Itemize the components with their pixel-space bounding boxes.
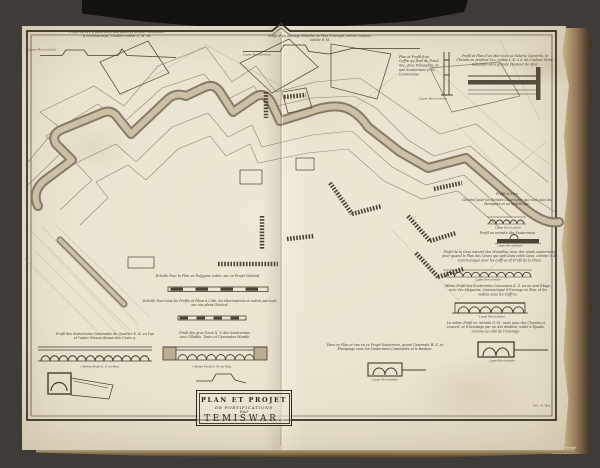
caption-line: avec l'Étable, Tours et Casemates Murale… [149, 335, 281, 339]
title-cartouche: PLAN ET PROJET DE FORTIFICATIONS Pour TE… [196, 390, 292, 426]
caption-right-head2: Général pour les Rondes Casemates qui vo… [460, 198, 554, 207]
engraver-signature: Fec: A. Hm. [533, 404, 575, 408]
label-ligne-horizontale: Ligne Horizontale [28, 48, 84, 52]
label-ligne-horizontale: Ligne Horizontale [243, 53, 299, 57]
caption-scale-plan: Echelle Pour le Plan en Polygone entier,… [145, 274, 272, 278]
caption-bottom-left-sub: † Même Profil K. F. en Plan. [62, 365, 137, 369]
plate-title-line3: Pour [200, 410, 289, 414]
caption-top-left: Profil du Terre plein avec Murailles et … [57, 30, 178, 39]
engraved-plate-page [22, 26, 570, 450]
caption-scale-profils: Echelle Pour tous les Profils et Plans à… [141, 299, 279, 308]
book-scan: Profil du Terre plein avec Murailles et … [0, 0, 600, 468]
caption-bottom-center: Profil des gros Tours X. V. des Souterra… [149, 331, 281, 340]
label-ligne-horizontale: Ligne Horizontale [357, 378, 413, 382]
caption-right-head: Profil et Plan [474, 192, 540, 196]
label-ligne-horizontale: Ligne Horizontale [460, 278, 516, 282]
label-ligne-horizontale: Ligne Horizontale [482, 244, 538, 248]
caption-bottom-right: Dans ce Plan et vue en ce Projet Souterr… [325, 343, 446, 352]
plate-title-line4: TEMISWAR. [200, 414, 289, 424]
caption-top-center: Profil d'un ouvrage détaché au Plan Prin… [260, 34, 381, 43]
caption-bottom-center-sub: † Même Profil X. W. en Plan. [174, 365, 249, 369]
caption-right-retraite: Profil en retraite des Souterrains. [464, 231, 552, 235]
caption-right-gh: Le même Profil en retraite G. H., mais a… [441, 321, 551, 334]
book-cloth-shadow [82, 0, 468, 30]
title-cartouche-inner: PLAN ET PROJET DE FORTIFICATIONS Pour TE… [199, 393, 290, 424]
label-ligne-horizontale: Ligne Horizontale [464, 315, 520, 319]
caption-line: à Contrescarpe, Couleur cottée G. M. M. [57, 34, 178, 38]
plate-title-line1: PLAN ET PROJET [200, 396, 289, 404]
label-ligne-horizontale: Ligne Horizontale [474, 359, 530, 363]
caption-right-cave: Profil de la Cave naturel des Murailles,… [442, 250, 558, 263]
caption-line: Cottée F. M. [260, 38, 381, 42]
label-ligne-horizontale: Ligne Horizontale [419, 97, 475, 101]
caption-coffre: Plan et Profil d'un Coffre au fond du Fo… [399, 55, 440, 77]
caption-right-meme: Même Profil des Souterrains Casemates K.… [443, 284, 553, 297]
label-ligne-horizontale: Ligne Horizontale [480, 226, 536, 230]
caption-top-right: Profil et Plan d'un Mur avec sa Galerie … [456, 54, 555, 67]
